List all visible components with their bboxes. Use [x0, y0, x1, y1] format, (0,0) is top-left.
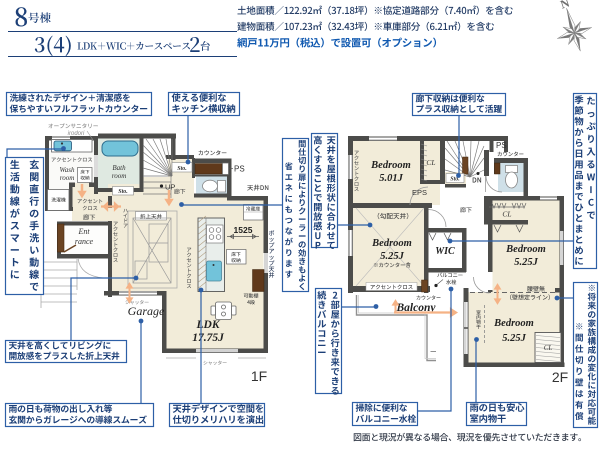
svg-text:CL: CL: [544, 344, 553, 352]
svg-text:1525: 1525: [234, 225, 253, 235]
svg-text:Bedroom: Bedroom: [370, 160, 411, 171]
svg-text:CL: CL: [502, 210, 511, 219]
svg-text:PS: PS: [496, 141, 507, 150]
svg-text:room: room: [112, 172, 127, 180]
svg-text:17.75J: 17.75J: [192, 332, 225, 344]
svg-text:Sto.: Sto.: [177, 166, 187, 172]
svg-text:5.25J: 5.25J: [380, 251, 404, 262]
svg-text:Wash: Wash: [60, 166, 75, 174]
svg-text:Bedroom: Bedroom: [371, 238, 412, 249]
svg-text:CL: CL: [426, 158, 435, 167]
svg-text:WIC: WIC: [435, 246, 455, 257]
svg-text:Bath: Bath: [112, 164, 126, 172]
svg-text:2F: 2F: [552, 369, 568, 385]
svg-text:5.25J: 5.25J: [514, 257, 538, 268]
svg-text:PS: PS: [234, 165, 245, 174]
svg-text:1F: 1F: [251, 368, 267, 384]
svg-text:rance: rance: [75, 237, 94, 246]
svg-text:Sto.: Sto.: [118, 189, 128, 195]
svg-text:Garage: Garage: [128, 304, 165, 318]
svg-text:N: N: [559, 0, 572, 12]
svg-text:5.01J: 5.01J: [379, 173, 403, 184]
svg-text:Bedroom: Bedroom: [493, 318, 534, 329]
svg-text:Ent: Ent: [77, 227, 90, 236]
svg-text:room: room: [60, 174, 75, 182]
svg-text:EPS: EPS: [412, 188, 427, 197]
svg-text:5.25J: 5.25J: [502, 333, 526, 344]
svg-text:LDK: LDK: [196, 319, 221, 331]
svg-text:irodori: irodori: [68, 131, 85, 137]
svg-text:Bedroom: Bedroom: [505, 244, 546, 255]
